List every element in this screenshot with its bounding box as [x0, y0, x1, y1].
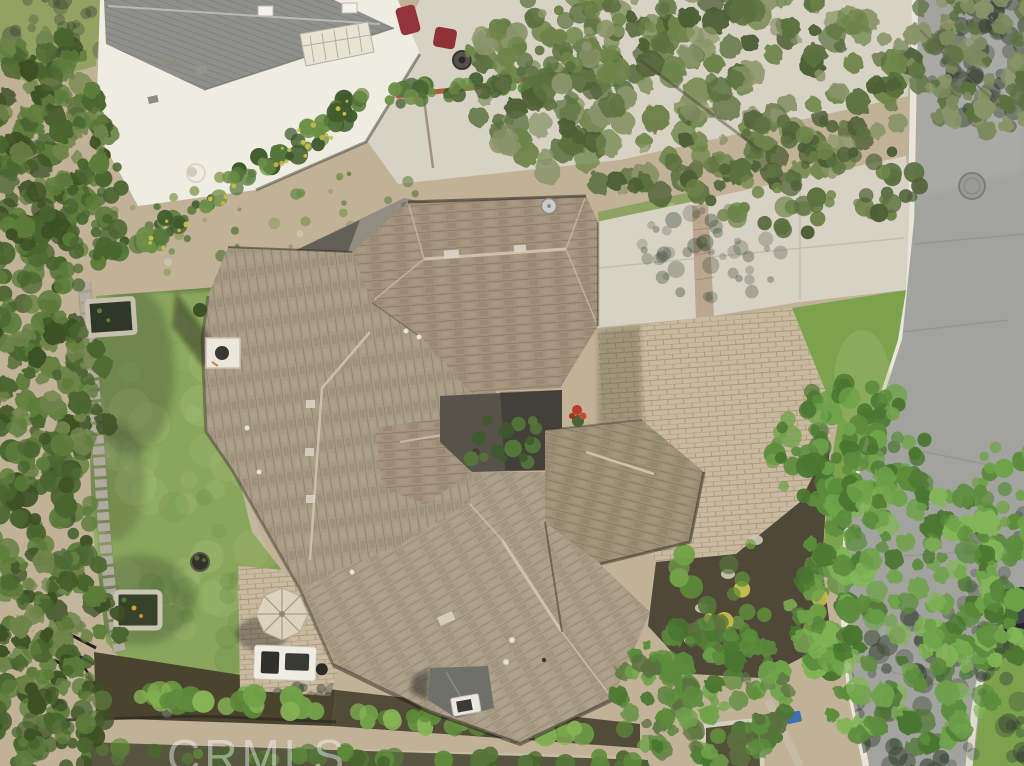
- foliage-blob: [859, 188, 874, 203]
- foliage-blob: [609, 685, 628, 704]
- foliage-blob: [212, 524, 226, 538]
- foliage-blob: [898, 593, 918, 613]
- foliage-blob: [68, 390, 92, 414]
- foliage-blob: [678, 6, 700, 28]
- foliage-blob: [111, 626, 129, 644]
- foliage-blob: [1005, 535, 1023, 553]
- foliage-blob: [384, 712, 402, 730]
- foliage-blob: [757, 660, 780, 683]
- roof-vent-6: [503, 659, 509, 665]
- foliage-blob: [62, 630, 73, 641]
- foliage-blob: [55, 699, 68, 712]
- foliage-blob: [879, 194, 889, 204]
- foliage-blob: [385, 95, 395, 105]
- foliage-blob: [987, 652, 1003, 668]
- foliage-blob: [274, 162, 279, 167]
- foliage-blob: [861, 656, 877, 672]
- foliage-blob: [752, 186, 764, 198]
- foliage-blob: [61, 49, 81, 69]
- foliage-blob: [147, 744, 161, 758]
- roof-vent: [245, 426, 250, 431]
- planter-shrub: [710, 728, 726, 744]
- foliage-blob: [719, 555, 738, 574]
- foliage-blob: [754, 714, 766, 726]
- foliage-blob: [328, 189, 333, 194]
- foliage-blob: [926, 593, 945, 612]
- koi-fish: [132, 606, 137, 611]
- foliage-blob: [504, 440, 522, 458]
- foliage-blob: [698, 615, 715, 632]
- foliage-blob: [11, 655, 27, 671]
- foliage-blob: [287, 148, 291, 152]
- foliage-blob: [775, 452, 787, 464]
- foliage-blob: [81, 373, 94, 386]
- foliage-blob: [492, 127, 519, 154]
- foliage-blob: [24, 367, 36, 379]
- foliage-blob: [10, 142, 33, 165]
- foliage-blob: [158, 492, 189, 523]
- foliage-blob: [641, 247, 648, 254]
- foliage-blob: [18, 439, 35, 456]
- foliage-blob: [54, 277, 71, 294]
- chimney-flue: [215, 346, 229, 360]
- foliage-blob: [281, 147, 284, 150]
- foliage-blob: [52, 369, 62, 379]
- foliage-blob: [950, 640, 973, 663]
- foliage-blob: [20, 61, 40, 81]
- foliage-blob: [259, 159, 276, 176]
- foliage-blob: [33, 550, 57, 574]
- foliage-blob: [723, 628, 738, 643]
- roof-vent-7: [350, 570, 355, 575]
- foliage-blob: [774, 246, 788, 260]
- foliage-blob: [986, 121, 996, 131]
- foliage-blob: [13, 407, 27, 421]
- foliage-blob: [196, 489, 212, 505]
- foliage-blob: [627, 177, 643, 193]
- foliage-blob: [319, 135, 324, 140]
- foliage-blob: [54, 495, 77, 518]
- foliage-blob: [284, 159, 288, 163]
- foliage-blob: [165, 220, 168, 223]
- foliage-blob: [831, 452, 843, 464]
- foliage-blob: [768, 164, 782, 178]
- foliage-blob: [341, 200, 347, 206]
- foliage-blob: [691, 146, 710, 165]
- foliage-blob: [668, 261, 685, 278]
- foliage-blob: [239, 169, 256, 186]
- foliage-blob: [552, 29, 568, 45]
- foliage-blob: [864, 716, 877, 729]
- foliage-blob: [523, 89, 534, 100]
- foliage-blob: [888, 623, 911, 646]
- foliage-blob: [93, 356, 114, 377]
- foliage-blob: [89, 403, 102, 416]
- foliage-blob: [648, 652, 658, 662]
- foliage-blob: [93, 252, 102, 261]
- foliage-blob: [744, 722, 755, 733]
- foliage-blob: [111, 752, 125, 766]
- foliage-blob: [983, 57, 992, 66]
- foliage-blob: [974, 485, 987, 498]
- foliage-blob: [739, 604, 756, 621]
- foliage-blob: [72, 428, 87, 443]
- foliage-blob: [89, 154, 109, 174]
- foliage-blob: [996, 501, 1009, 514]
- foliage-blob: [301, 140, 306, 145]
- foliage-blob: [612, 13, 626, 27]
- foliage-blob: [184, 235, 191, 242]
- foliage-blob: [866, 76, 886, 96]
- foliage-blob: [641, 253, 653, 265]
- foliage-blob: [626, 12, 637, 23]
- path-shrub: [193, 303, 207, 317]
- foliage-blob: [565, 27, 583, 45]
- foliage-blob: [797, 489, 812, 504]
- foliage-blob: [631, 654, 648, 671]
- foliage-blob: [35, 669, 50, 684]
- foliage-blob: [75, 713, 96, 734]
- foliage-blob: [853, 199, 862, 208]
- foliage-blob: [759, 136, 773, 150]
- foliage-blob: [903, 667, 924, 688]
- foliage-blob: [826, 156, 838, 168]
- foliage-blob: [94, 710, 114, 730]
- bbq-grill: [261, 651, 280, 674]
- foliage-blob: [81, 691, 93, 703]
- foliage-blob: [354, 88, 369, 103]
- upper-pond-water: [87, 298, 135, 335]
- foliage-blob: [864, 609, 885, 630]
- foliage-blob: [757, 216, 771, 230]
- foliage-blob: [782, 685, 794, 697]
- foliage-blob: [305, 144, 310, 149]
- foliage-blob: [301, 216, 311, 226]
- foliage-blob: [597, 66, 614, 83]
- foliage-blob: [796, 126, 814, 144]
- foliage-blob: [726, 70, 745, 89]
- foliage-blob: [231, 184, 236, 189]
- foliage-blob: [884, 484, 905, 505]
- foliage-blob: [343, 112, 347, 116]
- foliage-blob: [227, 171, 240, 184]
- foliage-blob: [185, 405, 202, 422]
- foliage-blob: [939, 753, 949, 763]
- foliage-blob: [202, 218, 207, 223]
- foliage-blob: [223, 194, 228, 199]
- foliage-blob: [1, 36, 18, 53]
- foliage-blob: [163, 269, 171, 277]
- foliage-blob: [3, 192, 18, 207]
- foliage-blob: [187, 206, 196, 215]
- foliage-blob: [775, 196, 796, 217]
- foliage-blob: [169, 193, 178, 202]
- foliage-blob: [1012, 721, 1021, 730]
- foliage-blob: [745, 285, 758, 298]
- foliage-blob: [740, 673, 750, 683]
- foliage-blob: [867, 443, 879, 455]
- foliage-blob: [103, 214, 113, 224]
- foliage-blob: [727, 209, 746, 228]
- foliage-blob: [58, 477, 74, 493]
- roof-vent-5: [509, 637, 515, 643]
- foliage-blob: [758, 232, 773, 247]
- foliage-blob: [698, 207, 705, 214]
- foliage-blob: [662, 226, 672, 236]
- foliage-blob: [938, 73, 953, 88]
- foliage-blob: [161, 246, 165, 250]
- foliage-blob: [26, 348, 46, 368]
- foliage-blob: [148, 241, 152, 245]
- foliage-blob: [708, 249, 715, 256]
- foliage-blob: [938, 553, 948, 563]
- foliage-blob: [336, 173, 343, 180]
- foliage-blob: [909, 470, 928, 489]
- foliage-blob: [384, 196, 392, 204]
- foliage-blob: [990, 442, 1001, 453]
- foliage-blob: [557, 12, 574, 29]
- foliage-blob: [168, 248, 175, 255]
- foliage-blob: [639, 144, 650, 155]
- foliage-blob: [922, 550, 936, 564]
- foliage-blob: [83, 82, 100, 99]
- foliage-blob: [929, 487, 948, 506]
- foliage-blob: [93, 624, 108, 639]
- foliage-blob: [0, 468, 15, 484]
- foliage-blob: [510, 52, 520, 62]
- foliage-blob: [940, 516, 950, 526]
- foliage-blob: [682, 247, 692, 257]
- foliage-blob: [110, 605, 125, 620]
- foliage-blob: [978, 561, 989, 572]
- foliage-blob: [491, 72, 514, 95]
- foliage-blob: [638, 77, 654, 93]
- foliage-blob: [57, 570, 78, 591]
- foliage-blob: [177, 229, 181, 233]
- red-flowers-3: [569, 413, 575, 419]
- foliage-blob: [402, 176, 413, 187]
- foliage-blob: [984, 462, 995, 473]
- foliage-blob: [534, 158, 560, 184]
- foliage-blob: [180, 471, 198, 489]
- foliage-blob: [865, 380, 879, 394]
- foliage-blob: [886, 77, 901, 92]
- manhole-cover: [959, 173, 985, 199]
- foliage-blob: [1009, 522, 1017, 530]
- foliage-blob: [88, 340, 106, 358]
- foliage-blob: [24, 605, 44, 625]
- foliage-blob: [1010, 31, 1024, 45]
- foliage-blob: [810, 211, 825, 226]
- foliage-blob: [80, 630, 93, 643]
- foliage-blob: [682, 687, 704, 709]
- foliage-blob: [82, 506, 93, 517]
- foliage-blob: [208, 197, 213, 202]
- foliage-blob: [999, 672, 1013, 686]
- foliage-blob: [925, 536, 940, 551]
- foliage-blob: [29, 513, 41, 525]
- foliage-blob: [641, 692, 654, 705]
- foliage-blob: [68, 214, 77, 223]
- koi-fish-2: [139, 614, 143, 618]
- foliage-blob: [807, 187, 827, 207]
- foliage-blob: [27, 697, 43, 713]
- foliage-blob: [18, 561, 29, 572]
- foliage-blob: [782, 135, 792, 145]
- foliage-blob: [954, 722, 970, 738]
- foliage-blob: [27, 24, 36, 33]
- foliage-blob: [678, 133, 693, 148]
- foliage-blob: [998, 566, 1011, 579]
- foliage-blob: [799, 401, 816, 418]
- foliage-blob: [764, 45, 783, 64]
- foliage-blob: [231, 227, 239, 235]
- foliage-blob: [1003, 101, 1016, 114]
- foliage-blob: [983, 72, 996, 85]
- foliage-blob: [53, 0, 68, 15]
- foliage-blob: [47, 582, 58, 593]
- foliage-blob: [40, 472, 56, 488]
- foliage-blob: [686, 633, 701, 648]
- foliage-blob: [940, 14, 949, 23]
- foliage-blob: [538, 9, 547, 18]
- foliage-blob: [152, 229, 169, 246]
- foliage-blob: [69, 322, 87, 340]
- foliage-blob: [199, 199, 213, 213]
- skylight-2: [514, 245, 526, 253]
- foliage-blob: [740, 175, 754, 189]
- foliage-blob: [1006, 83, 1017, 94]
- foliage-blob: [1003, 552, 1018, 567]
- foliage-blob: [1003, 617, 1015, 629]
- foliage-blob: [891, 432, 904, 445]
- foliage-blob: [809, 641, 827, 659]
- foliage-blob: [1, 679, 20, 698]
- foliage-blob: [994, 460, 1011, 477]
- watermark-logo-fragment: [162, 708, 172, 718]
- foliage-blob: [638, 39, 650, 51]
- foliage-blob: [724, 650, 746, 672]
- foliage-blob: [77, 158, 88, 169]
- foliage-blob: [149, 236, 154, 241]
- foliage-blob: [544, 98, 557, 111]
- foliage-blob: [833, 642, 853, 662]
- foliage-blob: [621, 704, 639, 722]
- foliage-blob: [705, 214, 719, 228]
- foliage-blob: [464, 451, 479, 466]
- foliage-blob: [706, 675, 725, 694]
- foliage-blob: [25, 682, 39, 696]
- foliage-blob: [6, 228, 18, 240]
- foliage-blob: [24, 579, 36, 591]
- foliage-blob: [835, 509, 853, 527]
- foliage-blob: [844, 53, 864, 73]
- foliage-blob: [280, 702, 300, 722]
- foliage-blob: [296, 189, 305, 198]
- foliage-blob: [584, 3, 600, 19]
- foliage-blob: [734, 238, 741, 245]
- foliage-blob: [949, 11, 959, 21]
- foliage-blob: [935, 680, 960, 705]
- foliage-blob: [72, 278, 85, 291]
- foliage-blob: [297, 128, 301, 132]
- foliage-blob: [963, 742, 973, 752]
- foliage-blob: [819, 116, 829, 126]
- foliage-blob: [815, 70, 826, 81]
- aerial-photo: CRMLS: [0, 0, 1024, 766]
- neighbor-chimney-cap: [258, 6, 273, 16]
- foliage-blob: [22, 295, 41, 314]
- foliage-blob: [183, 222, 189, 228]
- foliage-blob: [95, 413, 118, 436]
- foliage-blob: [344, 109, 357, 122]
- foliage-blob: [930, 658, 947, 675]
- foliage-blob: [304, 154, 308, 158]
- foliage-blob: [27, 246, 48, 267]
- foliage-blob: [951, 484, 976, 509]
- foliage-blob: [31, 415, 45, 429]
- foliage-blob: [946, 615, 966, 635]
- foliage-blob: [976, 671, 987, 682]
- foliage-blob: [571, 127, 589, 145]
- foliage-blob: [638, 14, 664, 40]
- foliage-blob: [675, 287, 685, 297]
- neighbor-patio-chair-2: [432, 26, 457, 50]
- foliage-blob: [347, 172, 352, 177]
- foliage-blob: [974, 0, 993, 19]
- upper-pond: [87, 298, 135, 335]
- foliage-blob: [955, 539, 980, 564]
- foliage-blob: [40, 391, 64, 415]
- foliage-blob: [851, 684, 872, 705]
- foliage-blob: [656, 271, 669, 284]
- foliage-blob: [837, 147, 852, 162]
- foliage-blob: [543, 56, 559, 72]
- foliage-blob: [41, 27, 52, 38]
- foliage-blob: [745, 539, 755, 549]
- foliage-blob: [745, 266, 754, 275]
- foliage-blob: [735, 571, 750, 586]
- ridge-vent-2: [305, 448, 314, 456]
- foliage-blob: [685, 179, 704, 198]
- foliage-blob: [912, 559, 923, 570]
- foliage-blob: [616, 721, 633, 738]
- planter-sprig-2: [202, 558, 206, 562]
- foliage-blob: [1009, 54, 1024, 69]
- foliage-blob: [809, 491, 826, 508]
- foliage-blob: [339, 209, 348, 218]
- foliage-blob: [641, 718, 651, 728]
- foliage-blob: [878, 390, 892, 404]
- foliage-blob: [702, 257, 719, 274]
- roof-vent-4: [417, 335, 422, 340]
- foliage-blob: [62, 665, 73, 676]
- foliage-blob: [994, 630, 1008, 644]
- foliage-blob: [475, 83, 491, 99]
- foliage-blob: [40, 628, 54, 642]
- foliage-blob: [51, 433, 75, 457]
- foliage-blob: [774, 218, 791, 235]
- stone-3: [164, 258, 172, 266]
- foliage-blob: [777, 422, 788, 433]
- foliage-blob: [869, 123, 886, 140]
- foliage-blob: [388, 82, 402, 96]
- foliage-blob: [329, 136, 333, 140]
- umbrella-pole-top: [279, 611, 285, 617]
- roof-vent-2: [257, 470, 262, 475]
- foliage-blob: [698, 596, 717, 615]
- foliage-blob: [45, 176, 64, 195]
